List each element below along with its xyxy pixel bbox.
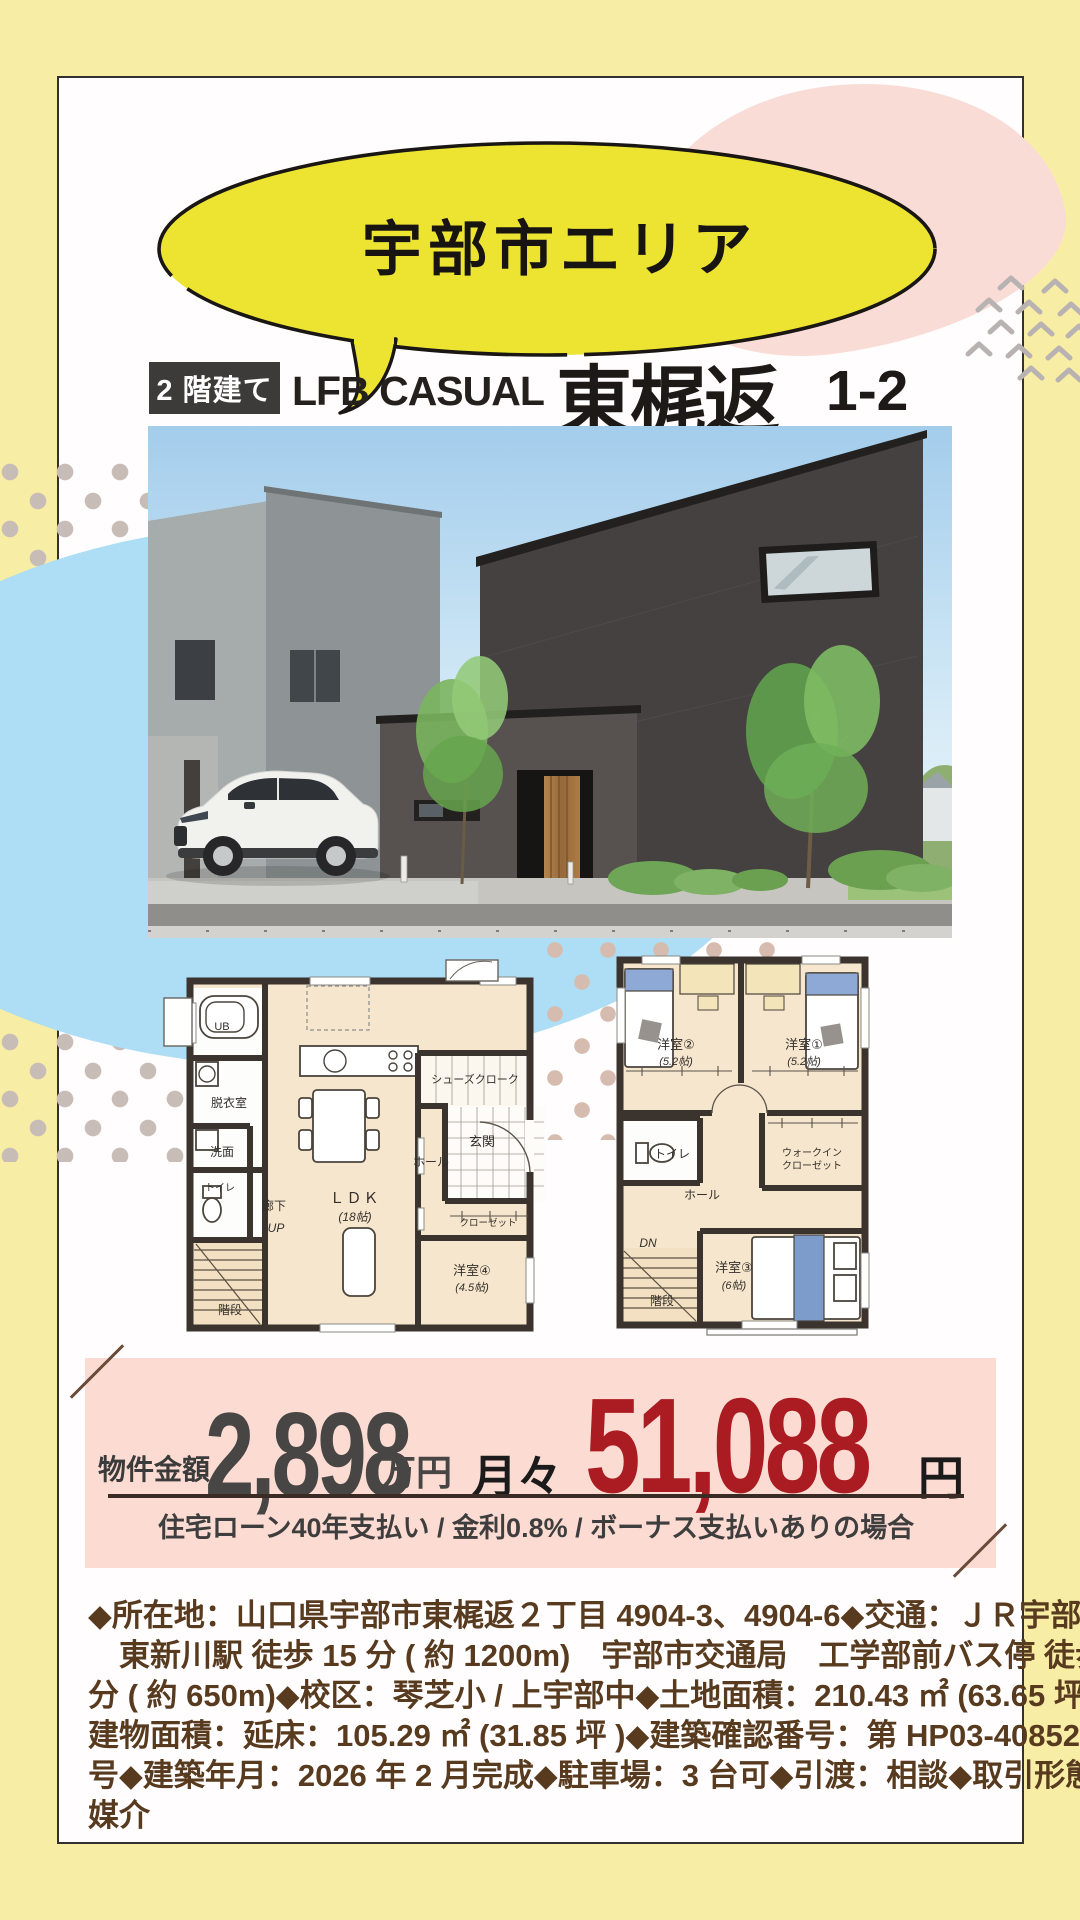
ub-window <box>164 998 192 1046</box>
label-kaidan-1f: 階段 <box>218 1302 242 1317</box>
label-wic-line2: クローゼット <box>782 1160 842 1172</box>
label-room2-size: (5.2帖) <box>659 1055 693 1068</box>
monthly-amount: 51,088 <box>585 1378 868 1513</box>
label-genkan: 玄関 <box>469 1134 495 1149</box>
label-senmen: 洗面 <box>210 1145 234 1159</box>
front-door <box>544 776 580 888</box>
label-toilet-2f: トイレ <box>654 1147 690 1161</box>
property-details: ◆所在地：山口県宇部市東梶返２丁目 4904-3、4904-6◆交通：ＪＲ宇部線… <box>88 1596 1003 1836</box>
balcony <box>707 1329 857 1335</box>
floor-plan-1f: UB 脱衣室 洗面 トイレ 廊下 UP 階段 ＬＤＫ (18帖) シューズクロー… <box>150 958 550 1338</box>
chevron-pattern-decoration <box>960 272 1080 384</box>
exterior-photo <box>148 426 952 938</box>
details-line: 分 ( 約 650m)◆校区：琴芝小 / 上宇部中◆土地面積：210.43 ㎡ … <box>88 1676 1003 1716</box>
label-room3: 洋室③ <box>715 1260 753 1275</box>
bedroom3-furniture <box>752 1235 860 1321</box>
floor-plan-2f: 洋室② (5.2帖) 洋室① (5.2帖) トイレ ホール ウォークイン クロー… <box>612 953 874 1338</box>
label-hall-1f: ホール <box>413 1155 449 1169</box>
label-room4: 洋室④ <box>453 1263 491 1278</box>
flyer-page: 宇部市エリア 2 階建て LFB CASUAL 東梶返 1-2 <box>0 0 1080 1920</box>
label-ub: UB <box>214 1021 229 1033</box>
label-room1: 洋室① <box>785 1037 823 1052</box>
price-unit: 万円 <box>380 1444 452 1496</box>
label-wic-line1: ウォークイン <box>782 1147 842 1159</box>
price-label: 物件金額 <box>98 1448 210 1488</box>
label-datsuishitsu: 脱衣室 <box>211 1095 247 1110</box>
label-ldk-size: (18帖) <box>338 1210 371 1224</box>
label-shoes-cloak: シューズクローク <box>431 1072 518 1086</box>
property-unit-number: 1-2 <box>826 358 908 424</box>
loan-conditions: 住宅ローン40年支払い / 金利0.8% / ボーナス支払いありの場合 <box>108 1506 964 1545</box>
sofa <box>343 1228 375 1296</box>
details-line: 媒介 <box>88 1796 1003 1836</box>
bubble-tail-joint <box>354 330 394 344</box>
label-room2: 洋室② <box>657 1037 695 1052</box>
details-line: 建物面積：延床：105.29 ㎡ (31.85 坪 )◆建築確認番号：第 HP0… <box>88 1716 1003 1756</box>
label-rouka: 廊下 <box>262 1198 286 1213</box>
label-hall-2f: ホール <box>684 1188 720 1202</box>
upper-window <box>759 541 880 603</box>
brand-name: LFB CASUAL <box>292 368 544 415</box>
label-kaidan-2f: 階段 <box>650 1293 674 1308</box>
label-closet-1f: クローゼット <box>459 1217 516 1229</box>
label-ldk: ＬＤＫ <box>329 1190 380 1207</box>
stories-badge: 2 階建て <box>149 362 280 414</box>
details-line: 東新川駅 徒歩 15 分 ( 約 1200m) 宇部市交通局 工学部前バス停 徒… <box>88 1636 1003 1676</box>
price-underline <box>108 1494 964 1498</box>
label-room3-size: (6帖) <box>722 1279 747 1292</box>
label-room4-size: (4.5帖) <box>455 1281 489 1294</box>
label-up: UP <box>268 1221 285 1235</box>
label-dn: DN <box>639 1236 657 1250</box>
label-toilet-1f: トイレ <box>205 1183 235 1194</box>
details-line: ◆所在地：山口県宇部市東梶返２丁目 4904-3、4904-6◆交通：ＪＲ宇部線 <box>88 1596 1003 1636</box>
area-label: 宇部市エリア <box>362 216 758 283</box>
details-line: 号◆建築年月：2026 年 2 月完成◆駐車場：3 台可◆引渡：相談◆取引形態： <box>88 1756 1003 1796</box>
label-room1-size: (5.2帖) <box>787 1055 821 1068</box>
monthly-unit: 円 <box>918 1442 964 1508</box>
